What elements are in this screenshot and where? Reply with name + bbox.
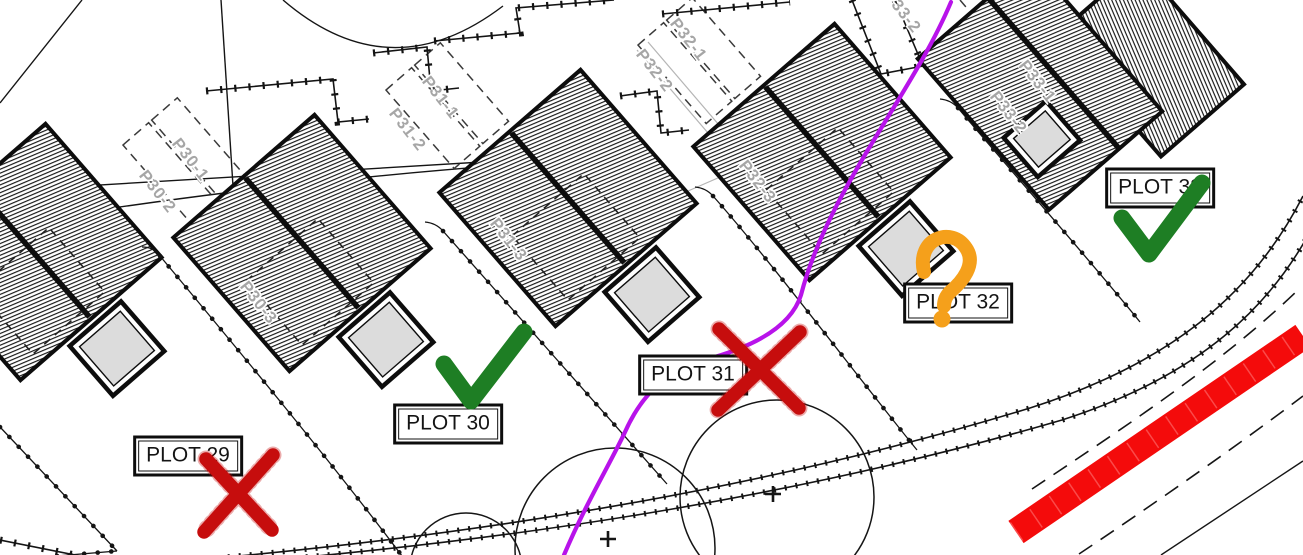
- plot-label-29: PLOT 29: [138, 441, 238, 472]
- house-plot-30: [173, 115, 478, 426]
- site-plan: PLOT 29 PLOT 30 PLOT 31 PLOT 32 PLOT 33 …: [0, 0, 1303, 555]
- tree-center-cross: [600, 531, 616, 547]
- highlighted-road: [1016, 290, 1303, 555]
- house-plot-29: [0, 124, 209, 435]
- plot-label-31: PLOT 31: [643, 360, 743, 391]
- houses: [0, 0, 1244, 435]
- plot-label-32: PLOT 32: [908, 288, 1008, 319]
- plot-label-33: PLOT 33: [1110, 173, 1210, 204]
- plot-label-30: PLOT 30: [398, 409, 498, 440]
- red-highlight-stripe: [1016, 336, 1303, 532]
